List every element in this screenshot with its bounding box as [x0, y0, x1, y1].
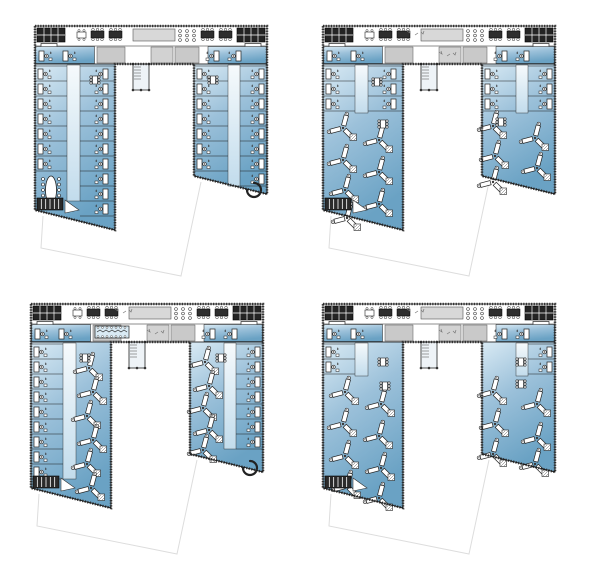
- chairs-table-symbol: [516, 358, 526, 366]
- core-room: [385, 325, 413, 341]
- chairs-table-symbol: [496, 118, 506, 126]
- core-room: [439, 325, 461, 341]
- floor-plan-top-left: [30, 18, 272, 280]
- core-room: [175, 47, 199, 63]
- meeting-table-symbol: [201, 28, 214, 41]
- stair-symbol: [37, 198, 63, 210]
- corridor-left-wing: [355, 343, 368, 376]
- meeting-table-symbol: [507, 306, 520, 319]
- core-room: [171, 325, 195, 341]
- elevator-core-symbol: [525, 28, 553, 42]
- floor-plan-svg-top-left: [30, 18, 272, 280]
- meeting-table-symbol: [87, 306, 100, 319]
- core-room: [439, 47, 461, 63]
- core-room: [463, 47, 487, 63]
- stair-symbol: [325, 198, 351, 210]
- chairs-table-symbol: [80, 354, 90, 362]
- chairs-table-symbol: [378, 358, 388, 366]
- meeting-table-symbol: [197, 306, 210, 319]
- meeting-table-symbol: [379, 306, 392, 319]
- core-room: [463, 325, 487, 341]
- floor-plan-top-right: [318, 18, 560, 280]
- hall-room: [421, 307, 463, 319]
- meeting-table-symbol: [397, 306, 410, 319]
- elevator-core-symbol: [237, 28, 265, 42]
- floor-plan-sheet: [0, 0, 600, 580]
- elevator-core-symbol: [325, 28, 353, 42]
- floor-plan-bottom-left: [26, 296, 268, 558]
- floor-plan-svg-bottom-right: [318, 296, 560, 558]
- central-stair-stub: [132, 63, 151, 92]
- meeting-table-symbol: [489, 28, 502, 41]
- chairs-table-symbol: [216, 354, 226, 362]
- meeting-table-symbol: [105, 306, 118, 319]
- corridor-right-wing: [516, 65, 528, 113]
- chairs-table-symbol: [380, 382, 390, 390]
- central-stair-stub: [420, 63, 439, 92]
- hall-room: [129, 307, 171, 319]
- core-room: [151, 47, 173, 63]
- chairs-table-symbol: [90, 76, 100, 84]
- meeting-table-symbol: [489, 306, 502, 319]
- central-stair-stub: [420, 341, 439, 370]
- stair-symbol: [325, 476, 351, 488]
- chairs-table-symbol: [516, 380, 526, 388]
- chairs-table-symbol: [208, 76, 218, 84]
- floor-plan-svg-top-right: [318, 18, 560, 280]
- meeting-table-symbol: [379, 28, 392, 41]
- core-room: [385, 47, 413, 63]
- elevator-core-symbol: [37, 28, 65, 42]
- floor-plan-svg-bottom-left: [26, 296, 268, 558]
- meeting-table-symbol: [397, 28, 410, 41]
- chairs-table-symbol: [378, 120, 388, 128]
- elevator-core-symbol: [233, 306, 261, 320]
- head-long-table: [95, 326, 129, 338]
- central-stair-stub: [128, 341, 147, 370]
- chairs-table-symbol: [372, 78, 382, 86]
- meeting-table-symbol: [91, 28, 104, 41]
- meeting-table-symbol: [507, 28, 520, 41]
- hall-room: [133, 29, 175, 41]
- corridor-left-wing: [67, 65, 80, 201]
- corridor-right-wing: [228, 65, 240, 186]
- meeting-table-symbol: [215, 306, 228, 319]
- corridor-left-wing: [355, 65, 368, 113]
- core-room: [97, 47, 125, 63]
- meeting-table-symbol: [219, 28, 232, 41]
- corridor-left-wing: [63, 343, 76, 479]
- hall-room: [421, 29, 463, 41]
- core-room: [147, 325, 169, 341]
- elevator-core-symbol: [325, 306, 353, 320]
- floor-plan-bottom-right: [318, 296, 560, 558]
- elevator-core-symbol: [33, 306, 61, 320]
- elevator-core-symbol: [525, 306, 553, 320]
- meeting-table-symbol: [109, 28, 122, 41]
- stair-symbol: [33, 476, 59, 488]
